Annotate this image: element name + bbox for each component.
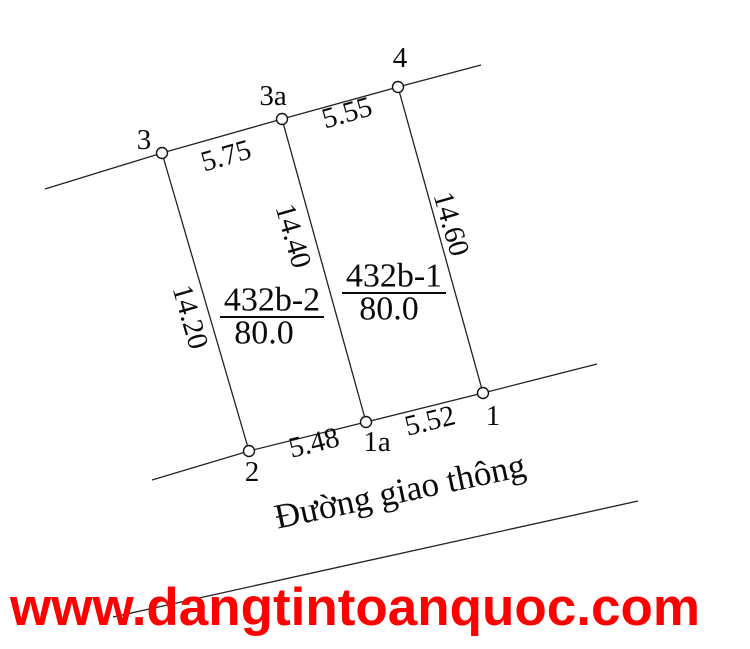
vertex-marker-3: [157, 148, 168, 159]
vertex-marker-3a: [277, 114, 288, 125]
vertex-label-3a: 3a: [259, 80, 287, 112]
parcel-432b-1-area: 80.0: [359, 291, 419, 328]
vertex-label-1: 1: [486, 400, 501, 432]
watermark-url-text: www.dangtintoanquoc.com: [10, 581, 700, 634]
parcel-432b-1-id: 432b-1: [346, 258, 442, 295]
dim-label-right-side: 14.60: [427, 188, 476, 260]
land-plot-diagram: 3 3a 4 2 1a 1 5.75 5.55 14.20 14.40 14.6…: [0, 0, 750, 649]
parcel-432b-2-id: 432b-2: [224, 282, 320, 319]
vertex-label-4: 4: [393, 42, 408, 74]
vertex-label-1a: 1a: [363, 426, 391, 458]
vertex-marker-1: [478, 388, 489, 399]
dim-label-left-side: 14.20: [166, 281, 215, 353]
dim-label-bottom-right: 5.52: [402, 399, 459, 442]
parcel-432b-2-area: 80.0: [234, 315, 294, 352]
vertex-marker-4: [393, 82, 404, 93]
vertex-marker-2: [244, 446, 255, 457]
diagram-lines: [45, 65, 638, 617]
diagram-canvas: 3 3a 4 2 1a 1 5.75 5.55 14.20 14.40 14.6…: [0, 0, 750, 649]
vertex-label-3: 3: [137, 124, 152, 156]
road-edge-near: [152, 364, 597, 480]
dim-label-top-right: 5.55: [318, 91, 376, 136]
dim-label-bottom-left: 5.48: [286, 421, 343, 464]
dim-label-middle: 14.40: [269, 200, 318, 272]
vertex-label-2: 2: [245, 456, 260, 488]
